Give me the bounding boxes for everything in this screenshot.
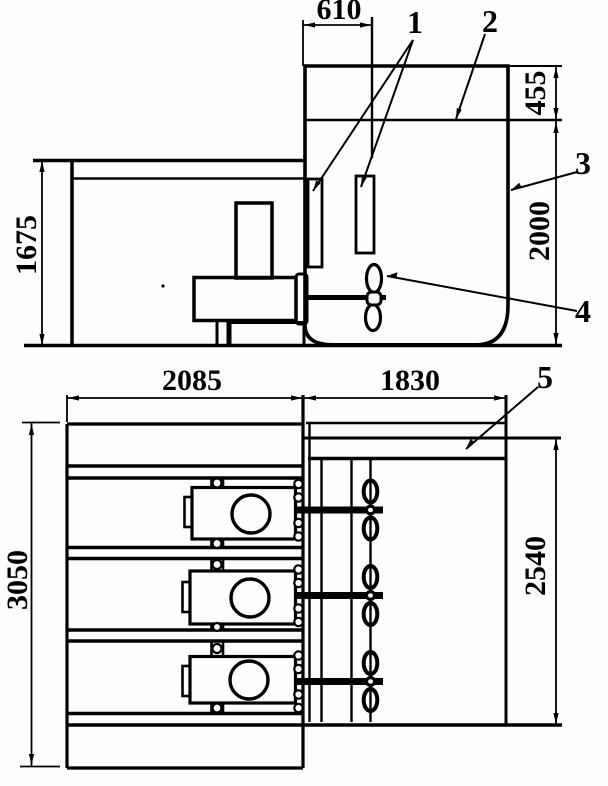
svg-text:455: 455 xyxy=(519,71,552,116)
svg-text:4: 4 xyxy=(575,293,591,329)
svg-text:2: 2 xyxy=(482,3,498,39)
svg-text:2085: 2085 xyxy=(162,364,222,397)
svg-text:1: 1 xyxy=(407,4,423,40)
svg-text:1675: 1675 xyxy=(10,215,43,275)
svg-text:3: 3 xyxy=(575,145,591,181)
svg-text:5: 5 xyxy=(537,359,553,395)
svg-text:1830: 1830 xyxy=(380,364,440,397)
svg-text:610: 610 xyxy=(317,0,362,26)
svg-text:2540: 2540 xyxy=(519,536,552,596)
svg-text:2000: 2000 xyxy=(523,201,556,261)
svg-text:3050: 3050 xyxy=(1,550,34,610)
